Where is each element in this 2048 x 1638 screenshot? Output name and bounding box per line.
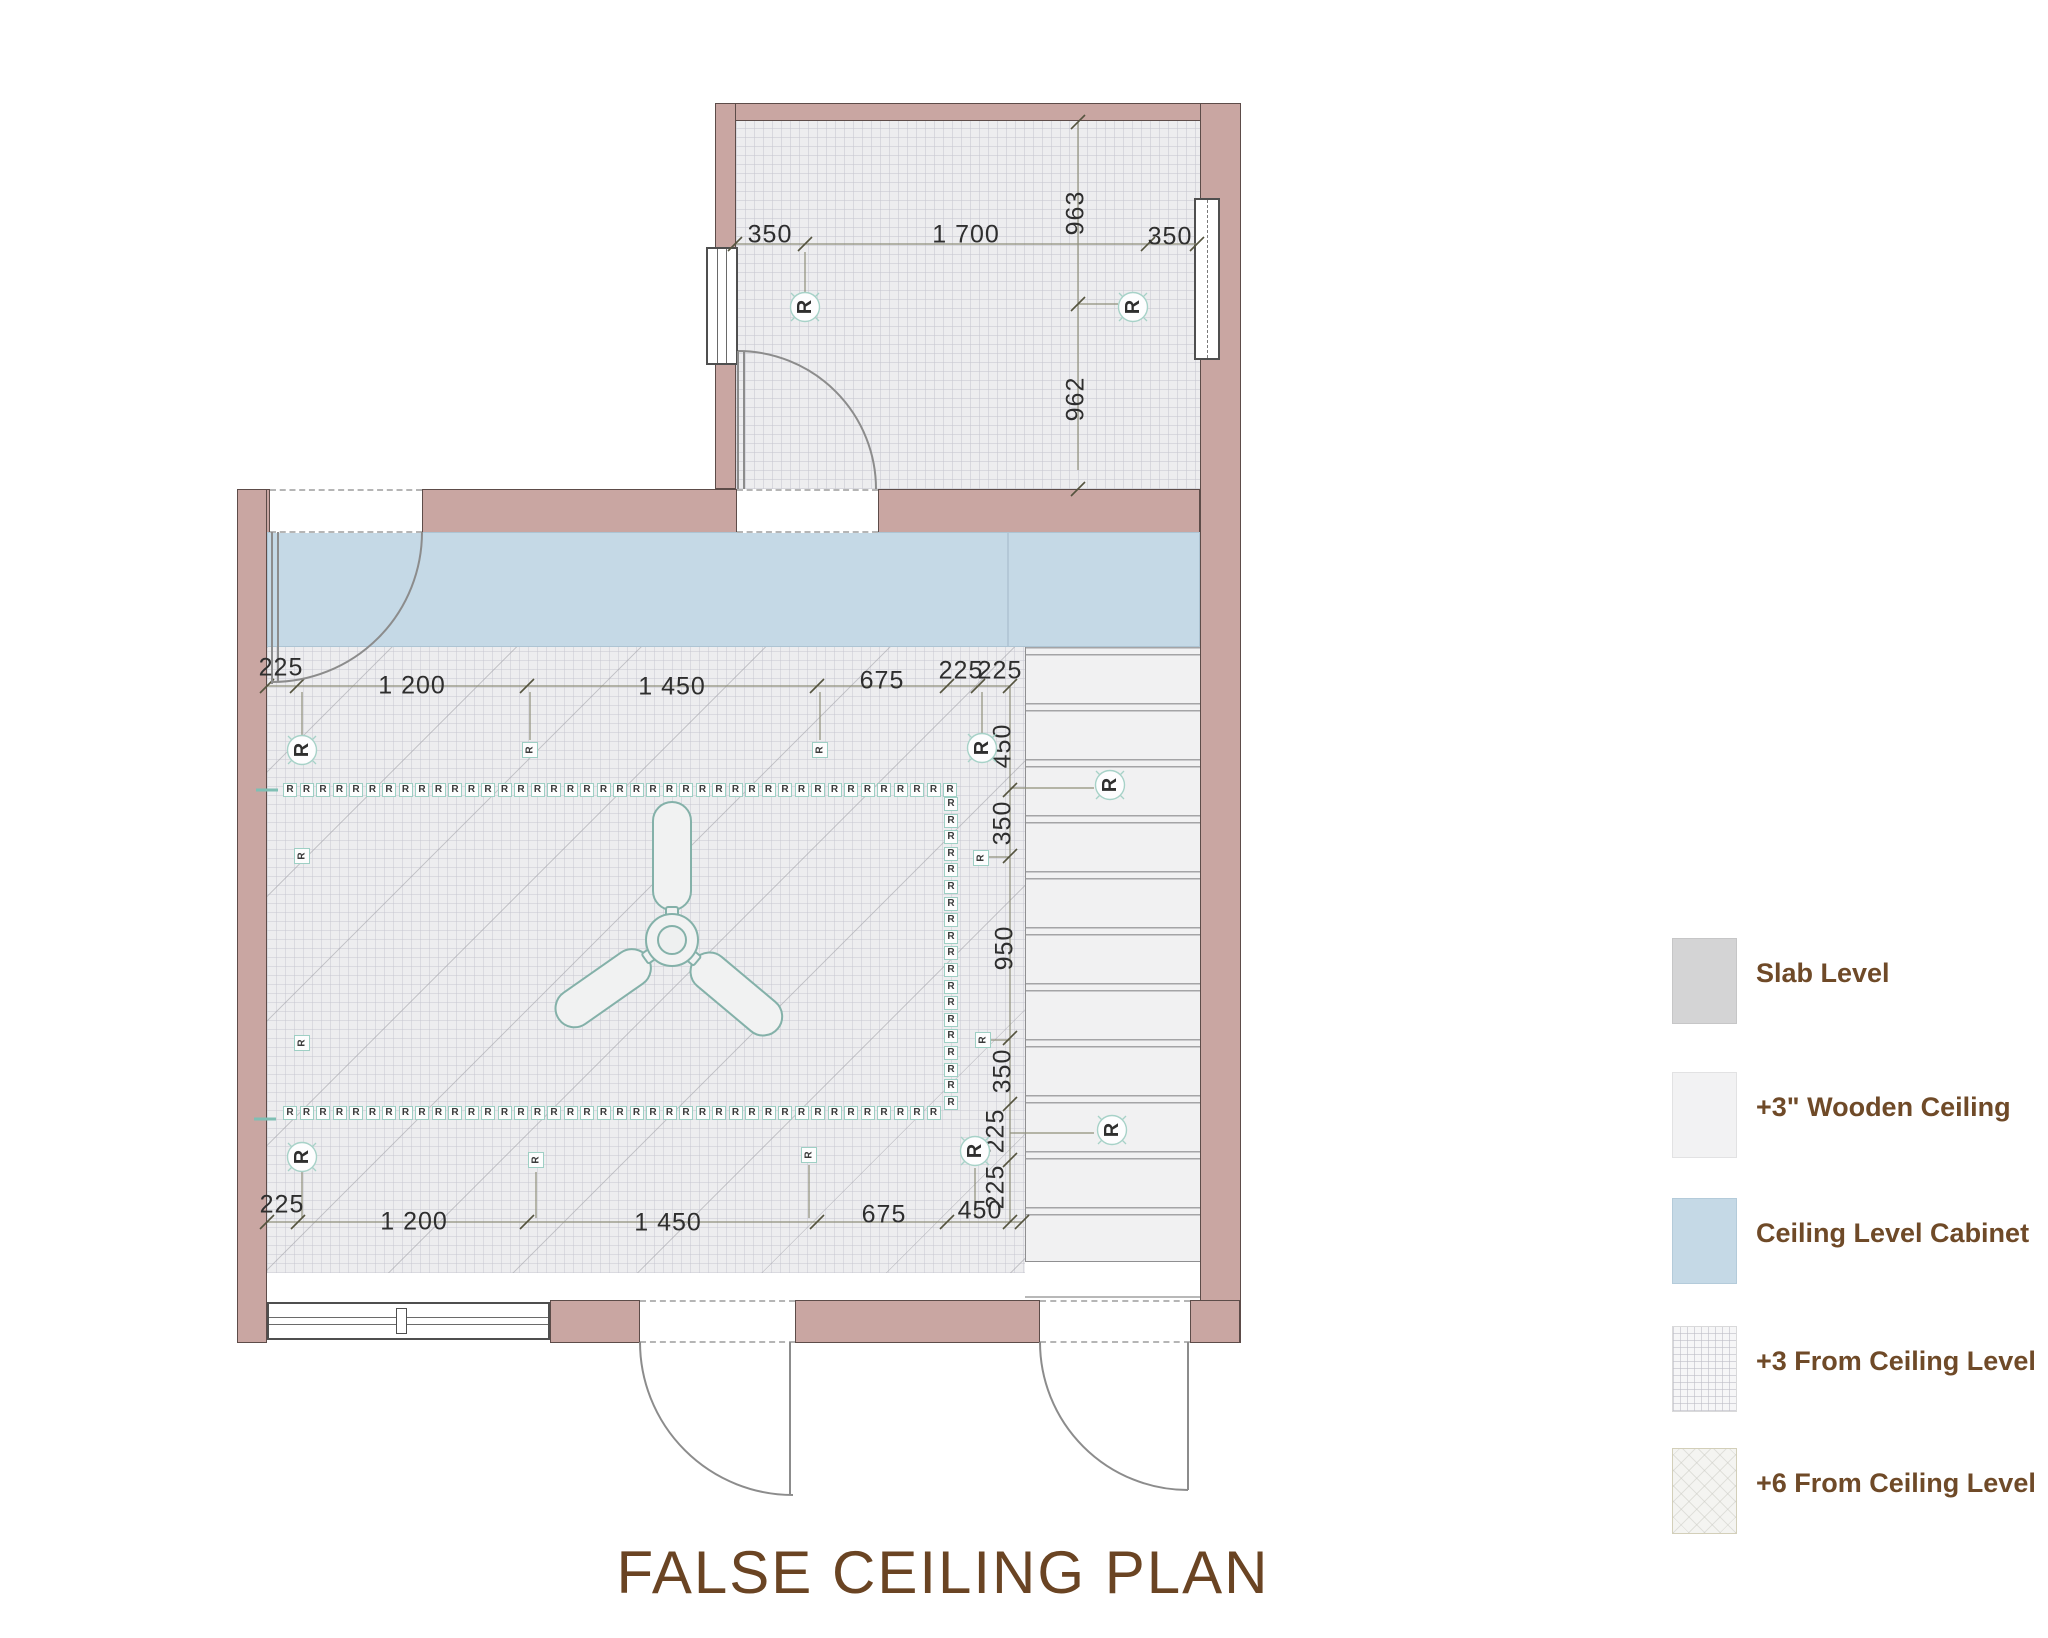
svg-text:R: R: [525, 746, 536, 754]
cove-light-strip-segment: R: [597, 1106, 611, 1120]
cove-light-strip-segment: R: [944, 797, 958, 811]
cove-light-strip-segment: R: [415, 1106, 429, 1120]
cove-light-strip-segment: R: [944, 830, 958, 844]
cove-light-strip-segment: R: [729, 783, 743, 797]
bottom-wall-segment-3: [1190, 1300, 1240, 1343]
cove-light-strip-segment: R: [564, 1106, 578, 1120]
dimension-label: 950: [991, 926, 1020, 971]
svg-text:R: R: [978, 1036, 989, 1044]
legend-label: Slab Level: [1756, 958, 1890, 989]
cove-light-strip-segment: R: [877, 1106, 891, 1120]
svg-text:R: R: [531, 1156, 542, 1164]
main-entry-door-opening: [270, 489, 422, 533]
dimension-label: 1 450: [638, 673, 706, 702]
cove-light-strip-segment: R: [844, 783, 858, 797]
dimension-label: 225: [260, 1191, 305, 1220]
dimension-label: 675: [860, 667, 905, 696]
recessed-light-marker: R: [1111, 285, 1155, 329]
cove-light-strip-segment: R: [300, 1106, 314, 1120]
svg-text:R: R: [804, 1151, 815, 1159]
recessed-light-marker: R: [280, 1135, 324, 1179]
small-light-marker: R: [801, 1147, 818, 1164]
cove-light-strip-segment: R: [944, 847, 958, 861]
small-light-marker: R: [973, 850, 990, 867]
cove-light-strip-segment: R: [910, 783, 924, 797]
recessed-light-marker: R: [1090, 1108, 1134, 1152]
cove-light-strip-segment: R: [828, 783, 842, 797]
main-top-wall-segment-1: [422, 489, 737, 533]
cove-light-strip-segment: R: [646, 1106, 660, 1120]
cove-light-strip-segment: R: [778, 1106, 792, 1120]
cove-light-strip-segment: R: [663, 783, 677, 797]
cove-light-strip-segment: R: [382, 1106, 396, 1120]
dimension-label: 225: [259, 654, 304, 683]
cove-light-strip-segment: R: [382, 783, 396, 797]
cove-light-strip-segment: R: [580, 1106, 594, 1120]
dimension-label: 1 450: [634, 1209, 702, 1238]
cove-light-strip-segment: R: [432, 783, 446, 797]
cove-light-strip-segment: R: [465, 783, 479, 797]
svg-text:R: R: [297, 852, 308, 860]
cove-light-strip-segment: R: [712, 783, 726, 797]
cove-light-strip-segment: R: [465, 1106, 479, 1120]
recessed-light-marker: R: [280, 728, 324, 772]
cove-light-strip-segment: R: [564, 783, 578, 797]
legend-label: +3 From Ceiling Level: [1756, 1346, 2036, 1377]
cove-light-strip-segment: R: [943, 783, 957, 797]
cove-light-strip-segment: R: [432, 1106, 446, 1120]
cove-light-strip-segment: R: [514, 783, 528, 797]
top-room-left-window: [706, 247, 738, 365]
recessed-light-marker: R: [953, 1129, 997, 1173]
cove-light-strip-segment: R: [349, 1106, 363, 1120]
plank-ceiling-area: [1025, 647, 1200, 1262]
cove-light-strip-segment: R: [498, 783, 512, 797]
cove-light-strip-segment: R: [944, 1079, 958, 1093]
cove-light-strip-segment: R: [316, 1106, 330, 1120]
cove-light-strip-segment: R: [349, 783, 363, 797]
main-room-ceiling-area: [267, 647, 1025, 1273]
main-top-wall-segment-2: [878, 489, 1200, 533]
cove-light-strip-segment: R: [333, 783, 347, 797]
cove-light-strip-segment: R: [366, 783, 380, 797]
recessed-light-marker: R: [1088, 763, 1132, 807]
recessed-light-marker: R: [960, 726, 1004, 770]
cove-light-strip-segment: R: [481, 783, 495, 797]
small-light-marker: R: [522, 742, 539, 759]
small-light-marker: R: [975, 1032, 992, 1049]
top-room-door-opening: [737, 489, 878, 533]
legend-label: Ceiling Level Cabinet: [1756, 1218, 2029, 1249]
cove-light-strip-segment: R: [547, 783, 561, 797]
cove-light-strip-segment: R: [366, 1106, 380, 1120]
cove-light-strip-segment: R: [944, 1063, 958, 1077]
cove-light-strip-segment: R: [877, 783, 891, 797]
svg-text:R: R: [1122, 299, 1144, 314]
cove-light-strip-segment: R: [944, 863, 958, 877]
cove-light-strip-segment: R: [399, 783, 413, 797]
svg-text:R: R: [794, 299, 816, 314]
cove-light-strip-segment: R: [498, 1106, 512, 1120]
legend-label: +3" Wooden Ceiling: [1756, 1092, 2011, 1123]
cove-light-strip-segment: R: [944, 1046, 958, 1060]
cove-light-strip-segment: R: [927, 783, 941, 797]
cove-light-strip-segment: R: [811, 783, 825, 797]
cove-light-strip-segment: R: [778, 783, 792, 797]
cove-light-strip-segment: R: [333, 1106, 347, 1120]
cove-light-strip-segment: R: [316, 783, 330, 797]
dimension-label: 963: [1062, 191, 1091, 236]
dimension-label: 350: [989, 801, 1018, 846]
cove-light-strip-segment: R: [944, 897, 958, 911]
svg-text:R: R: [291, 742, 313, 757]
cove-light-strip-segment: R: [944, 814, 958, 828]
small-light-marker: R: [294, 848, 311, 865]
cove-light-strip-segment: R: [283, 783, 297, 797]
dimension-label: 675: [862, 1201, 907, 1230]
cove-light-strip-segment: R: [944, 880, 958, 894]
cove-light-strip-segment: R: [861, 783, 875, 797]
dimension-label: 1 200: [378, 672, 446, 701]
ceiling-level-cabinet-swatch: [1672, 1198, 1737, 1284]
cove-light-strip-segment: R: [679, 1106, 693, 1120]
slab-level-swatch: [1672, 938, 1737, 1024]
cove-light-strip-segment: R: [762, 783, 776, 797]
cove-light-strip-segment: R: [944, 913, 958, 927]
cove-light-strip-segment: R: [944, 946, 958, 960]
bottom-door-opening-left: [640, 1300, 795, 1343]
cove-light-strip-segment: R: [944, 1013, 958, 1027]
cove-light-strip-segment: R: [861, 1106, 875, 1120]
cove-light-strip-segment: R: [762, 1106, 776, 1120]
cove-light-strip-segment: R: [811, 1106, 825, 1120]
svg-text:R: R: [297, 1039, 308, 1047]
cove-light-strip-segment: R: [712, 1106, 726, 1120]
bottom-window: [267, 1302, 550, 1340]
cove-light-strip-segment: R: [580, 783, 594, 797]
cove-light-strip-segment: R: [448, 1106, 462, 1120]
dimension-label: 350: [748, 221, 793, 250]
bottom-wall-segment-1: [550, 1300, 640, 1343]
cove-light-strip-segment: R: [696, 783, 710, 797]
svg-text:R: R: [964, 1143, 986, 1158]
false-ceiling-plan: FALSE CEILING PLAN Slab Level +3" Wooden…: [0, 0, 2048, 1638]
top-room-right-window: [1194, 198, 1220, 360]
plus3-from-ceiling-swatch: [1672, 1326, 1737, 1412]
cove-light-strip-segment: R: [910, 1106, 924, 1120]
svg-text:R: R: [1099, 777, 1121, 792]
dimension-label: 1 700: [932, 221, 1000, 250]
plus6-from-ceiling-swatch: [1672, 1448, 1737, 1534]
cove-light-strip-segment: R: [531, 1106, 545, 1120]
svg-text:R: R: [1101, 1122, 1123, 1137]
cove-light-strip-segment: R: [448, 783, 462, 797]
dimension-label: 1 200: [380, 1208, 448, 1237]
cove-light-strip-segment: R: [795, 783, 809, 797]
svg-text:R: R: [291, 1149, 313, 1164]
cove-light-strip-segment: R: [795, 1106, 809, 1120]
bottom-door-opening-right: [1040, 1300, 1190, 1343]
cove-light-strip-segment: R: [514, 1106, 528, 1120]
cove-light-strip-segment: R: [613, 1106, 627, 1120]
cove-light-strip-segment: R: [894, 783, 908, 797]
cove-light-strip-segment: R: [944, 996, 958, 1010]
dimension-label: 225: [978, 657, 1023, 686]
window-handle: [396, 1308, 407, 1334]
cove-light-strip-segment: R: [944, 1096, 958, 1110]
cove-light-strip-segment: R: [630, 783, 644, 797]
plan-title: FALSE CEILING PLAN: [617, 1538, 1270, 1607]
dimension-label: 350: [1148, 223, 1193, 252]
cove-light-strip-segment: R: [283, 1106, 297, 1120]
dimension-label: 962: [1062, 377, 1091, 422]
cove-light-strip-segment: R: [663, 1106, 677, 1120]
small-light-marker: R: [294, 1035, 311, 1052]
svg-text:R: R: [815, 746, 826, 754]
cove-light-strip-segment: R: [597, 783, 611, 797]
cove-light-strip-segment: R: [745, 1106, 759, 1120]
cove-light-strip-segment: R: [646, 783, 660, 797]
cove-light-strip-segment: R: [944, 980, 958, 994]
cove-light-strip-segment: R: [630, 1106, 644, 1120]
dimension-label: 350: [989, 1049, 1018, 1094]
cove-light-strip-segment: R: [679, 783, 693, 797]
ceiling-level-cabinet-area: [267, 532, 1200, 647]
cove-light-strip-segment: R: [944, 1029, 958, 1043]
cove-light-strip-segment: R: [828, 1106, 842, 1120]
small-light-marker: R: [812, 742, 829, 759]
dimension-label: 450: [958, 1197, 1003, 1226]
door-swing-bottom-right: [1040, 1342, 1188, 1490]
top-room-top-wall: [715, 103, 1240, 121]
cove-light-strip-segment: R: [300, 783, 314, 797]
cove-light-strip-segment: R: [531, 783, 545, 797]
wooden-ceiling-swatch: [1672, 1072, 1737, 1158]
svg-text:R: R: [976, 854, 987, 862]
cove-light-strip-segment: R: [927, 1106, 941, 1120]
cove-light-strip-segment: R: [944, 930, 958, 944]
cove-light-strip-segment: R: [415, 783, 429, 797]
cove-light-strip-segment: R: [481, 1106, 495, 1120]
cove-light-strip-segment: R: [745, 783, 759, 797]
cove-light-strip-segment: R: [399, 1106, 413, 1120]
bottom-wall-segment-2: [795, 1300, 1040, 1343]
door-swing-bottom-left: [640, 1342, 793, 1495]
cove-light-strip-segment: R: [894, 1106, 908, 1120]
dimension-label: 225: [939, 657, 984, 686]
legend-label: +6 From Ceiling Level: [1756, 1468, 2036, 1499]
recessed-light-marker: R: [783, 285, 827, 329]
cove-light-strip-segment: R: [729, 1106, 743, 1120]
small-light-marker: R: [528, 1152, 545, 1169]
cove-light-strip-segment: R: [944, 963, 958, 977]
cove-light-strip-segment: R: [696, 1106, 710, 1120]
cove-light-strip-segment: R: [844, 1106, 858, 1120]
svg-text:R: R: [971, 740, 993, 755]
cove-light-strip-segment: R: [547, 1106, 561, 1120]
cove-light-strip-segment: R: [613, 783, 627, 797]
